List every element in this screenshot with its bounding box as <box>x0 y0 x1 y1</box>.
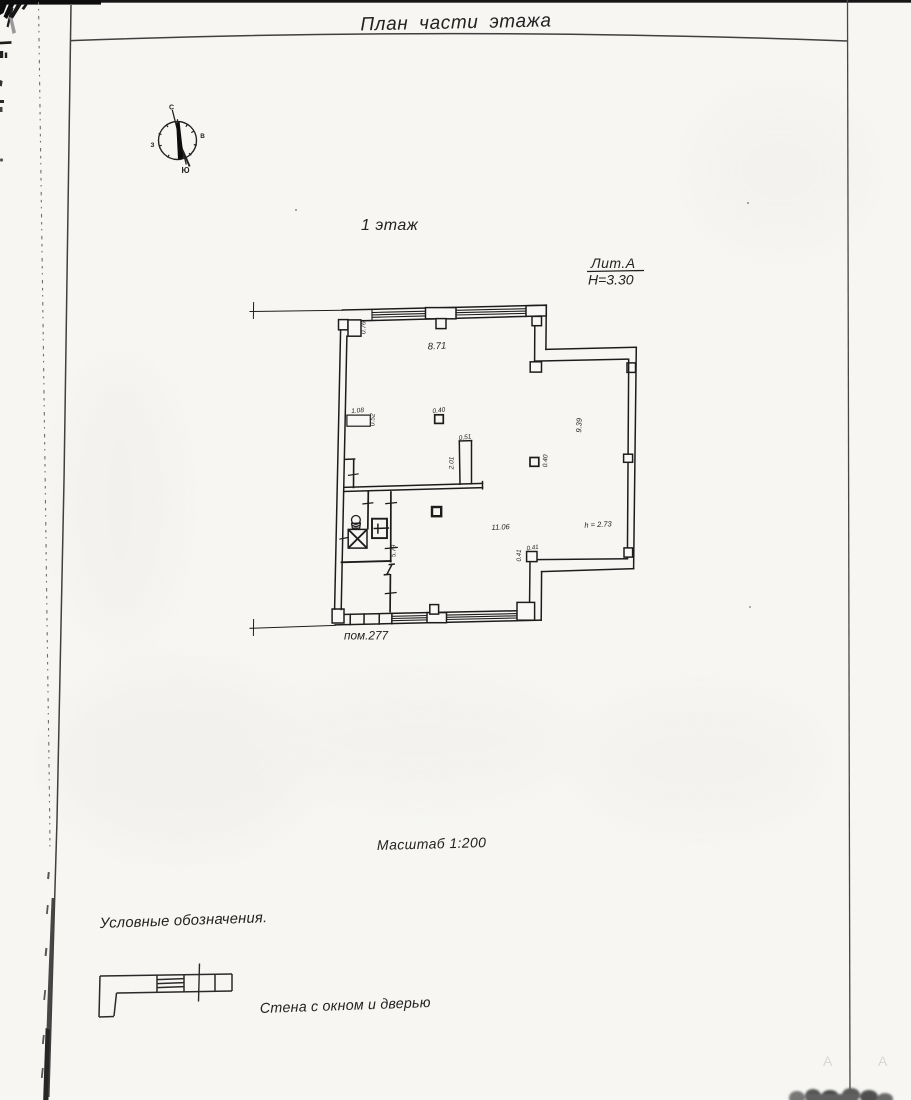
svg-text:h = 2.73: h = 2.73 <box>584 519 613 529</box>
svg-text:11.06: 11.06 <box>491 522 510 532</box>
svg-text:0.41: 0.41 <box>516 549 523 561</box>
svg-text:А: А <box>878 1053 888 1069</box>
svg-text:1 этаж: 1 этаж <box>361 217 419 234</box>
svg-text:В: В <box>200 133 205 140</box>
svg-text:Ю: Ю <box>182 166 190 175</box>
svg-text:0.76: 0.76 <box>361 321 368 334</box>
svg-text:З: З <box>151 142 155 149</box>
svg-text:Масштаб 1:200: Масштаб 1:200 <box>377 834 487 853</box>
svg-text:2.01: 2.01 <box>449 456 456 470</box>
svg-text:С: С <box>169 105 174 112</box>
svg-text:0.40: 0.40 <box>542 454 549 467</box>
svg-text:Н=3.30: Н=3.30 <box>588 272 634 288</box>
svg-text:пом.277: пом.277 <box>344 629 389 643</box>
svg-text:5.79: 5.79 <box>390 544 397 557</box>
svg-text:0.52: 0.52 <box>369 413 376 426</box>
svg-text:А: А <box>823 1053 833 1069</box>
svg-text:1.08: 1.08 <box>351 407 365 415</box>
svg-text:9.39: 9.39 <box>574 417 584 433</box>
svg-text:Лит.А: Лит.А <box>590 255 636 271</box>
svg-text:План части этажа: План части этажа <box>360 10 552 35</box>
svg-text:8.71: 8.71 <box>428 341 447 353</box>
